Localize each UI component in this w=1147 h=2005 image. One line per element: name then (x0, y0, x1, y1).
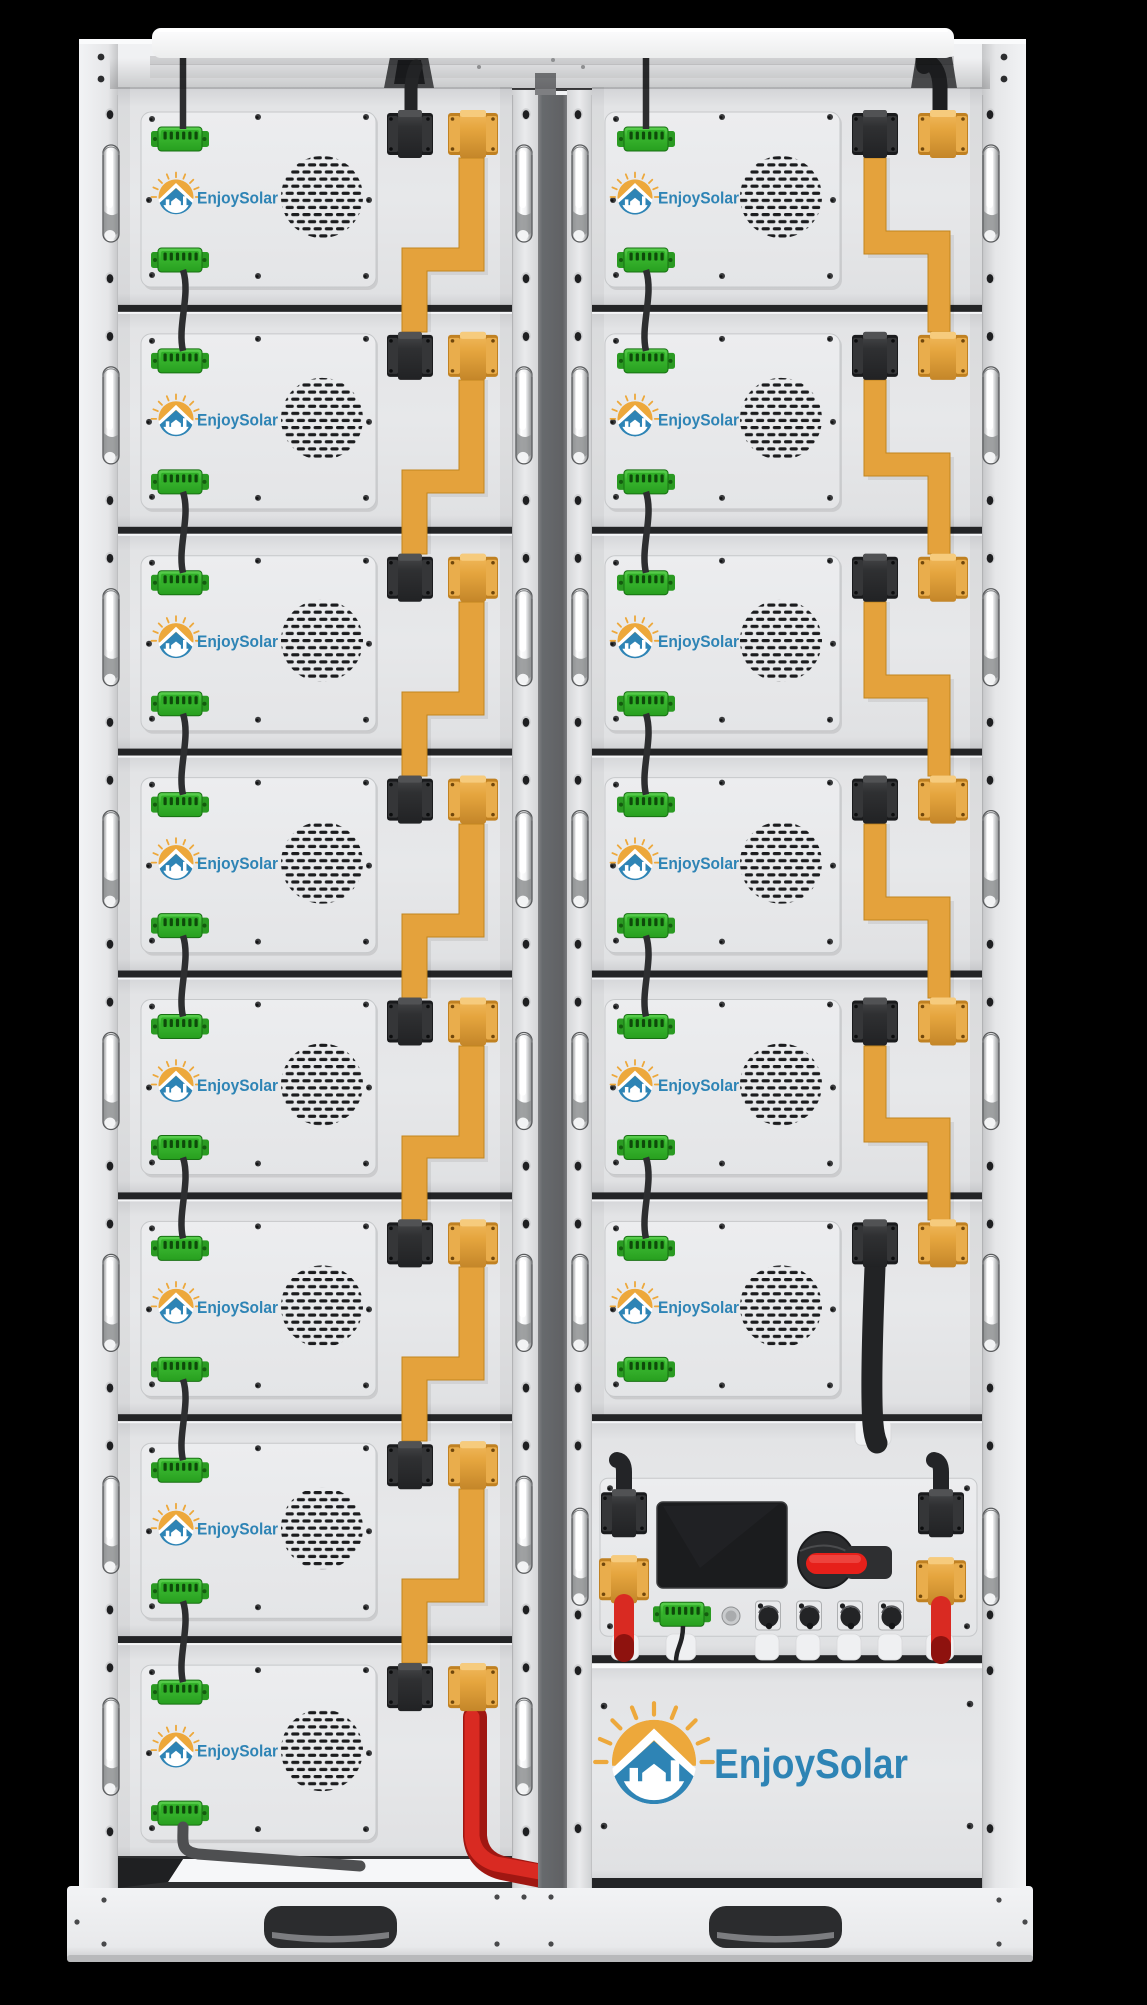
svg-text:EnjoySolar: EnjoySolar (197, 1076, 278, 1095)
svg-text:EnjoySolar: EnjoySolar (197, 1298, 278, 1317)
svg-text:EnjoySolar: EnjoySolar (714, 1740, 908, 1787)
svg-text:EnjoySolar: EnjoySolar (658, 410, 739, 429)
svg-text:EnjoySolar: EnjoySolar (197, 1520, 278, 1539)
svg-text:EnjoySolar: EnjoySolar (658, 1076, 739, 1095)
svg-text:EnjoySolar: EnjoySolar (197, 189, 278, 208)
svg-text:EnjoySolar: EnjoySolar (658, 189, 739, 208)
svg-text:EnjoySolar: EnjoySolar (197, 1742, 278, 1761)
svg-text:EnjoySolar: EnjoySolar (658, 1298, 739, 1317)
svg-text:EnjoySolar: EnjoySolar (197, 410, 278, 429)
svg-text:EnjoySolar: EnjoySolar (197, 632, 278, 651)
svg-text:EnjoySolar: EnjoySolar (197, 854, 278, 873)
svg-text:EnjoySolar: EnjoySolar (658, 632, 739, 651)
svg-text:EnjoySolar: EnjoySolar (658, 854, 739, 873)
